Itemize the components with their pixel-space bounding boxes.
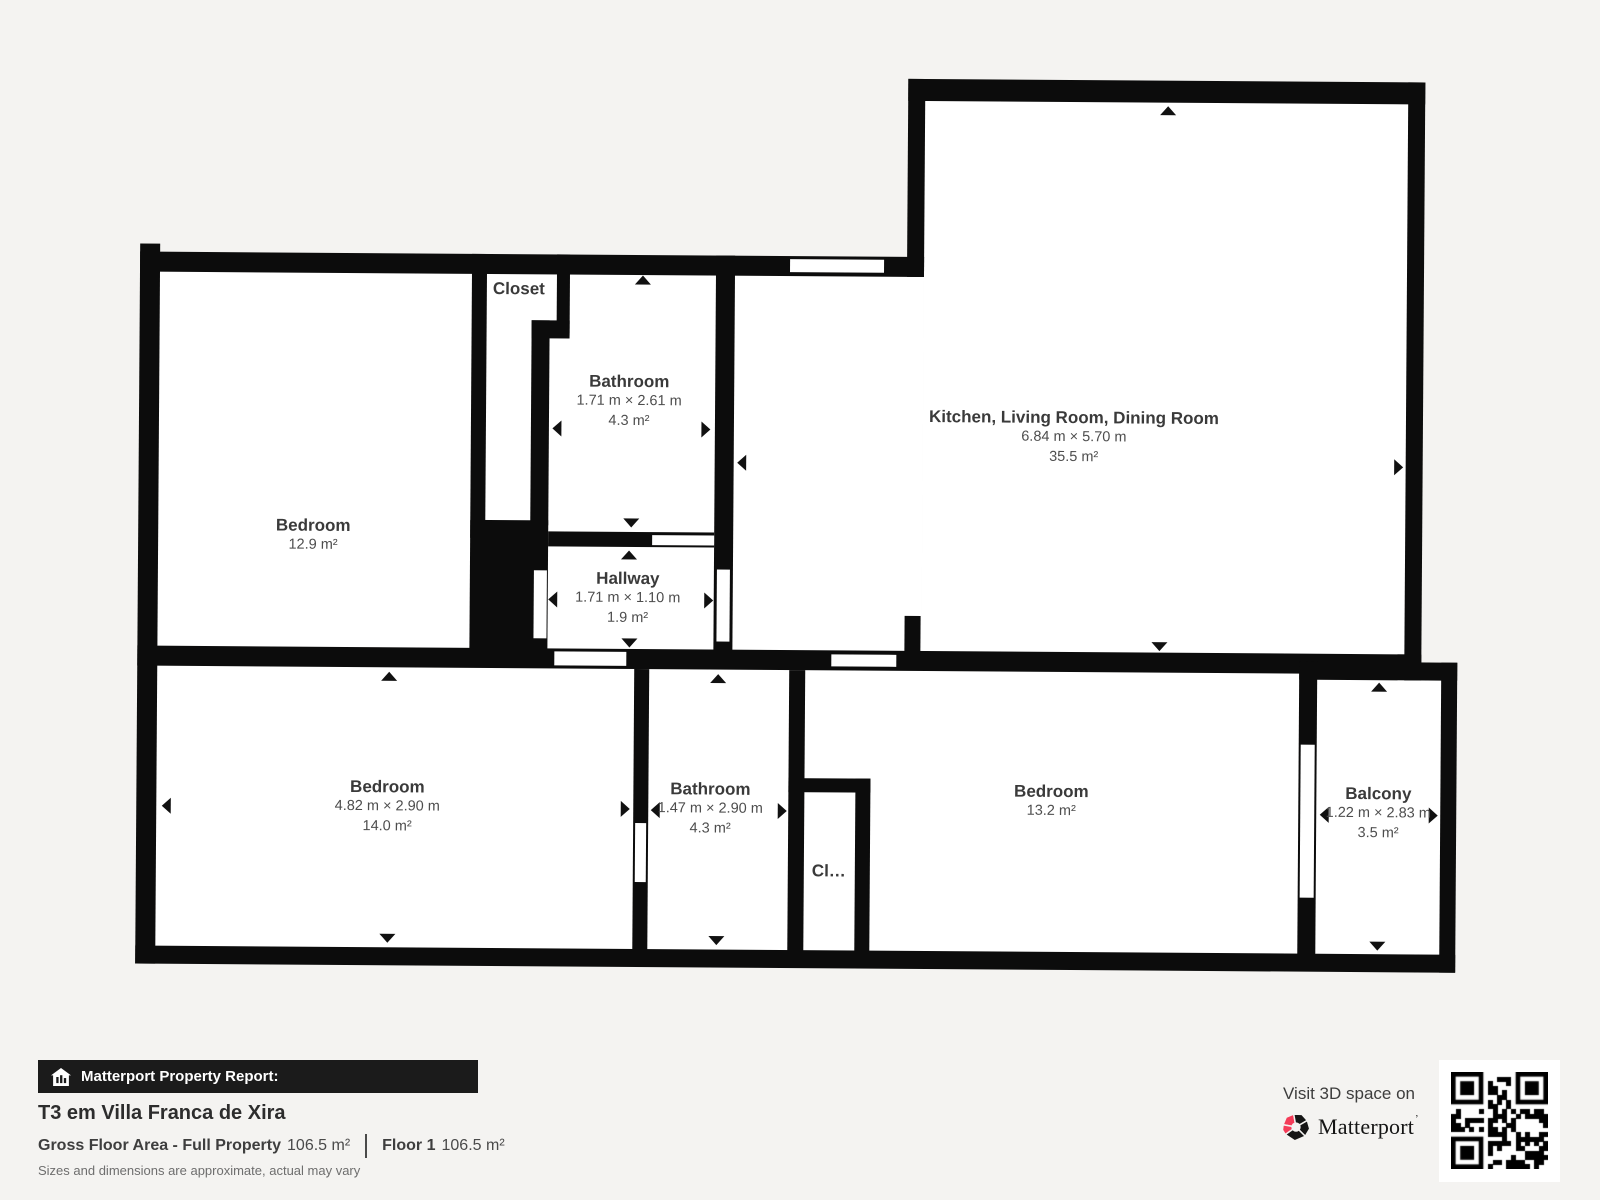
- room-name: Bedroom: [276, 514, 351, 536]
- room-area: 13.2 m²: [1014, 802, 1089, 822]
- room-label-closet-n: Closet: [493, 278, 545, 299]
- door-window-opening: [716, 570, 730, 642]
- room-floor: [570, 275, 716, 342]
- room-name: Cl…: [812, 860, 846, 881]
- qr-code-pattern: [1451, 1072, 1548, 1169]
- wall-segment: [1439, 663, 1457, 973]
- floor-area-stats: Gross Floor Area - Full Property 106.5 m…: [38, 1134, 505, 1158]
- room-area: 1.9 m²: [575, 608, 680, 628]
- measure-arrow-down: [379, 934, 395, 943]
- measure-arrow-up: [381, 672, 397, 681]
- room-label-bedroom-sw: Bedroom 4.82 m × 2.90 m 14.0 m²: [334, 776, 440, 837]
- measure-arrow-up: [621, 550, 637, 559]
- room-area: 14.0 m²: [334, 816, 439, 836]
- measure-arrow-down: [1151, 642, 1167, 651]
- gross-floor-area-label: Gross Floor Area - Full Property: [38, 1137, 281, 1155]
- room-area: 3.5 m²: [1325, 823, 1430, 843]
- room-label-bathroom-s: Bathroom 1.47 m × 2.90 m 4.3 m²: [657, 778, 763, 839]
- measure-arrow-left: [548, 591, 557, 607]
- room-label-bedroom-nw: Bedroom 12.9 m²: [276, 514, 351, 555]
- room-name: Kitchen, Living Room, Dining Room: [929, 406, 1219, 429]
- room-name: Bathroom: [658, 778, 763, 800]
- measure-arrow-up: [1371, 683, 1387, 692]
- room-dimensions: 1.22 m × 2.83 m: [1326, 804, 1431, 824]
- floor-plan-openings: [4, 0, 1600, 6]
- room-name: Bedroom: [335, 776, 440, 798]
- measure-arrow-up: [710, 674, 726, 683]
- measure-arrow-left: [162, 798, 171, 814]
- report-bar-label: Matterport Property Report:: [81, 1068, 279, 1085]
- room-name: Bedroom: [1014, 781, 1089, 803]
- room-label-bedroom-se: Bedroom 13.2 m²: [1014, 781, 1089, 822]
- wall-segment: [904, 616, 920, 653]
- wall-segment: [632, 669, 649, 951]
- door-window-opening: [831, 654, 896, 666]
- stats-divider: [365, 1134, 367, 1158]
- matterport-wordmark: Matterport’: [1318, 1114, 1419, 1140]
- room-dimensions: 1.71 m × 1.10 m: [575, 589, 680, 609]
- door-window-opening: [533, 570, 546, 638]
- room-dimensions: 1.71 m × 2.61 m: [576, 392, 681, 412]
- room-area: 35.5 m²: [929, 447, 1219, 469]
- visit-3d-space-label: Visit 3D space on: [1283, 1084, 1415, 1104]
- room-floor: [483, 320, 531, 525]
- measure-arrow-right: [778, 803, 787, 819]
- gross-floor-area-value: 106.5 m²: [287, 1137, 350, 1155]
- qr-code: [1439, 1060, 1560, 1182]
- measure-arrow-left: [737, 455, 746, 471]
- door-window-opening: [1300, 745, 1315, 898]
- floor-plan: Bedroom 12.9 m² Closet Bathroom 1.71 m ×…: [0, 0, 1600, 1046]
- room-label-hallway: Hallway 1.71 m × 1.10 m 1.9 m²: [575, 568, 681, 629]
- wall-segment: [530, 320, 549, 525]
- room-label-closet-s: Cl…: [812, 860, 846, 881]
- wall-segment: [1404, 82, 1425, 680]
- floor-plan-room-fills: [4, 0, 1600, 6]
- room-floor: [732, 276, 924, 653]
- room-floor: [548, 335, 715, 532]
- room-label-kitchen-living-dining: Kitchen, Living Room, Dining Room 6.84 m…: [929, 406, 1219, 468]
- wall-segment: [854, 779, 870, 953]
- measure-arrow-up: [1160, 106, 1176, 115]
- measure-arrow-down: [708, 936, 724, 945]
- measure-arrow-right: [1394, 459, 1403, 475]
- room-area: 12.9 m²: [276, 535, 351, 555]
- house-icon: [51, 1068, 71, 1086]
- room-area: 4.3 m²: [576, 411, 681, 431]
- measure-arrow-right: [704, 592, 713, 608]
- floor-plan-measure-arrows: [4, 0, 1600, 6]
- door-window-opening: [652, 535, 714, 545]
- wall-segment: [470, 254, 487, 538]
- property-title: T3 em Villa Franca de Xira: [38, 1102, 286, 1125]
- room-name: Closet: [493, 278, 545, 299]
- floor-label: Floor 1: [382, 1137, 435, 1155]
- room-name: Bathroom: [577, 371, 682, 393]
- room-label-bathroom-n: Bathroom 1.71 m × 2.61 m 4.3 m²: [576, 371, 682, 432]
- measure-arrow-left: [552, 420, 561, 436]
- brand-trademark: ’: [1415, 1114, 1419, 1125]
- floor-value: 106.5 m²: [442, 1137, 505, 1155]
- room-area: 4.3 m²: [657, 819, 762, 839]
- wall-segment: [1299, 662, 1457, 681]
- measure-arrow-down: [621, 638, 637, 647]
- door-window-opening: [554, 651, 626, 666]
- door-window-opening: [635, 823, 646, 882]
- measure-arrow-down: [1369, 942, 1385, 951]
- wall-segment: [787, 670, 805, 952]
- floor-plan-walls: [4, 0, 1600, 6]
- measure-arrow-right: [701, 421, 710, 437]
- room-dimensions: 6.84 m × 5.70 m: [929, 427, 1219, 449]
- room-floor: [157, 272, 472, 648]
- room-label-balcony: Balcony 1.22 m × 2.83 m 3.5 m²: [1325, 783, 1431, 844]
- room-name: Hallway: [575, 568, 680, 590]
- room-dimensions: 1.47 m × 2.90 m: [658, 799, 763, 819]
- room-floor: [921, 101, 1408, 656]
- room-dimensions: 4.82 m × 2.90 m: [335, 797, 440, 817]
- matterport-logo-icon: [1281, 1112, 1311, 1142]
- disclaimer-text: Sizes and dimensions are approximate, ac…: [38, 1163, 360, 1178]
- wall-segment: [907, 79, 925, 277]
- door-window-opening: [790, 259, 884, 273]
- measure-arrow-up: [635, 275, 651, 284]
- measure-arrow-down: [623, 518, 639, 527]
- wall-segment: [908, 79, 1425, 105]
- room-name: Balcony: [1326, 783, 1431, 805]
- matterport-brand: Matterport’: [1281, 1112, 1419, 1142]
- measure-arrow-right: [621, 801, 630, 817]
- report-header-bar: Matterport Property Report:: [38, 1060, 478, 1093]
